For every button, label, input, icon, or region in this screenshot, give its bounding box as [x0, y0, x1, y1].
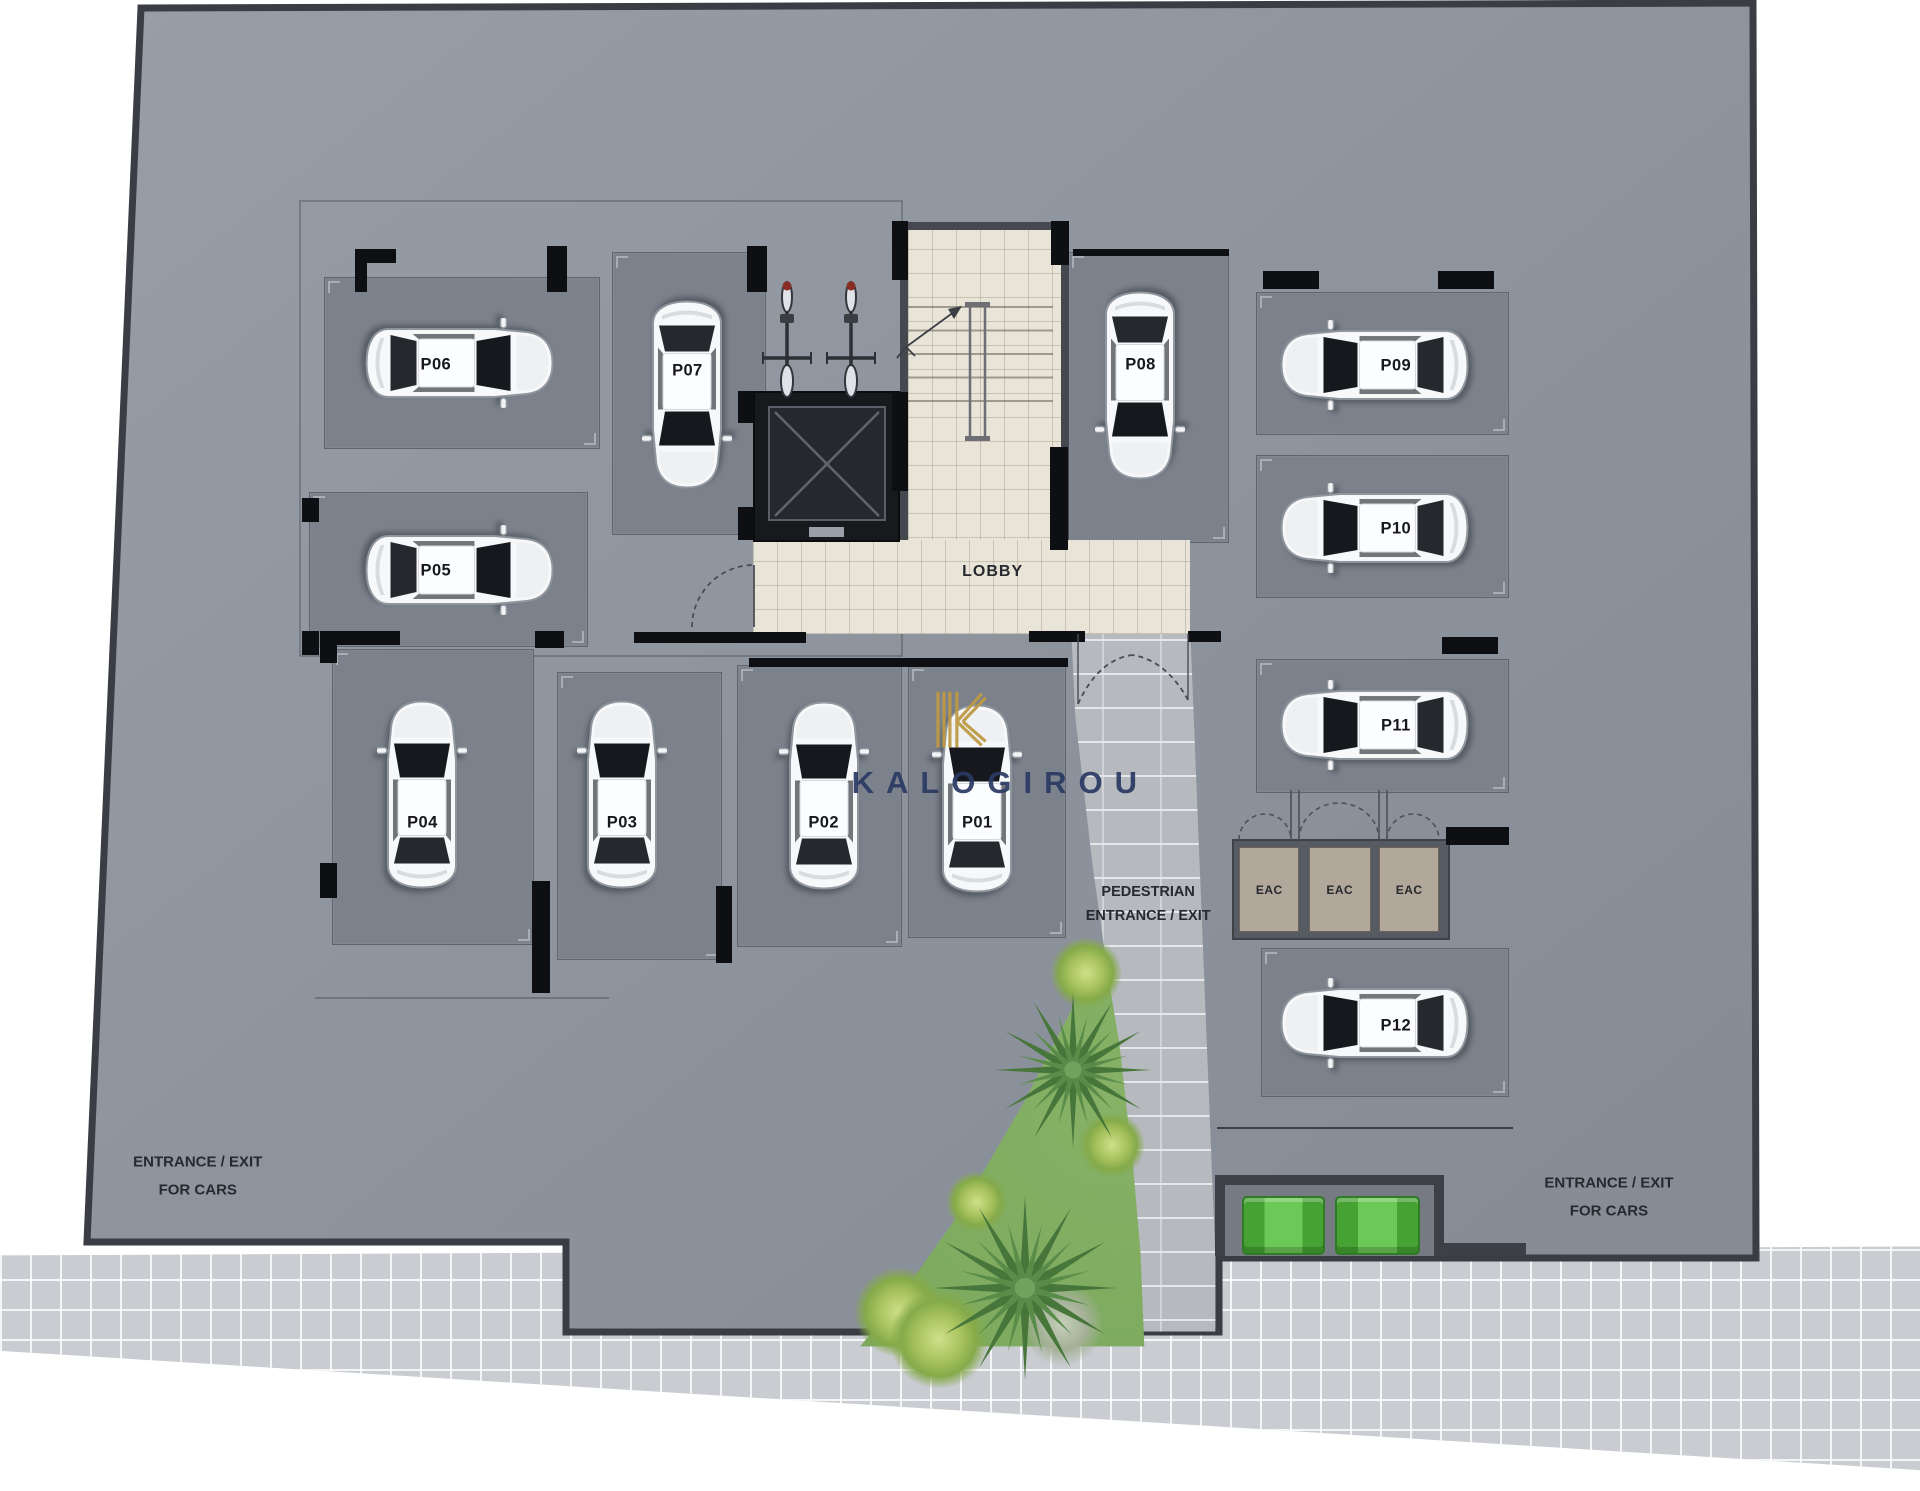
car-top-view	[1277, 978, 1472, 1068]
lobby-label: LOBBY	[962, 563, 1023, 581]
parking-spot-label: P11	[1381, 717, 1411, 736]
elevator-door	[809, 527, 844, 537]
car-entrance-right-label: ENTRANCE / EXIT FOR CARS	[1544, 1170, 1673, 1226]
wall-segment	[634, 632, 807, 642]
wall-segment	[716, 886, 732, 964]
wall-segment	[1051, 221, 1069, 266]
brand-watermark: KALOGIROU	[852, 765, 1149, 801]
parking-spot-label: P04	[407, 814, 438, 833]
wall-segment	[892, 221, 908, 281]
car-entrance-left-line1: ENTRANCE / EXIT	[133, 1149, 262, 1177]
wall-segment	[1263, 271, 1319, 288]
bench	[1242, 1196, 1325, 1256]
parking-spot-label: P10	[1381, 520, 1412, 539]
wall-segment	[535, 631, 564, 647]
parking-spot-label: P06	[421, 355, 452, 374]
wall-segment	[1050, 447, 1068, 550]
pedestrian-entrance-line2: ENTRANCE / EXIT	[1086, 905, 1211, 929]
wall-segment	[892, 392, 908, 490]
car-top-view	[1277, 320, 1472, 410]
eac-units: EAC EAC EAC	[1232, 839, 1450, 940]
wall-segment	[532, 881, 550, 993]
lobby-floor	[753, 540, 1191, 635]
parking-spot-label: P07	[672, 362, 703, 381]
bench	[1335, 1196, 1419, 1256]
parking-spot-label: P02	[808, 814, 839, 833]
car-top-view	[377, 697, 467, 892]
wall-segment	[747, 246, 767, 292]
wall-segment	[302, 631, 318, 655]
floor-plan-canvas: EAC EAC EAC	[0, 0, 1920, 1491]
parking-spot-label: P09	[1381, 357, 1412, 376]
wall-segment	[1442, 637, 1498, 654]
elevator	[753, 391, 901, 542]
parking-spot-label: P05	[421, 562, 452, 581]
wall-segment	[1444, 1243, 1527, 1256]
wall-segment	[1073, 249, 1229, 256]
wall-segment	[320, 631, 337, 662]
wall-segment	[1446, 827, 1509, 845]
car-top-view	[642, 296, 732, 491]
car-entrance-right-line2: FOR CARS	[1544, 1197, 1673, 1225]
pedestrian-entrance-label: PEDESTRIAN ENTRANCE / EXIT	[1086, 881, 1211, 929]
wall-segment	[355, 249, 367, 292]
eac-unit: EAC	[1379, 847, 1439, 932]
wall-segment	[547, 246, 567, 292]
wall-segment	[1438, 271, 1494, 288]
eac-label: EAC	[1256, 883, 1283, 897]
parking-spot-label: P03	[607, 814, 638, 833]
wall-segment	[302, 498, 318, 522]
eac-label: EAC	[1396, 883, 1423, 897]
eac-label: EAC	[1326, 883, 1353, 897]
car-top-view	[1277, 680, 1472, 770]
wall-segment	[749, 658, 1068, 668]
wall-segment	[1029, 631, 1085, 642]
car-top-view	[361, 525, 556, 615]
car-entrance-right-line1: ENTRANCE / EXIT	[1544, 1170, 1673, 1198]
car-entrance-left-line2: FOR CARS	[133, 1176, 262, 1204]
wall-segment	[738, 507, 752, 540]
eac-unit: EAC	[1239, 847, 1299, 932]
car-top-view	[1277, 483, 1472, 573]
car-top-view	[577, 697, 667, 892]
wall-segment	[320, 863, 337, 897]
brand-monogram-icon	[934, 689, 990, 750]
stair-treads	[907, 306, 1053, 424]
parking-spot-label: P01	[962, 814, 993, 833]
car-entrance-left-label: ENTRANCE / EXIT FOR CARS	[133, 1149, 262, 1205]
wall-segment	[738, 391, 752, 424]
car-top-view	[361, 318, 556, 408]
eac-unit: EAC	[1309, 847, 1371, 932]
parking-spot-label: P08	[1125, 356, 1156, 375]
pedestrian-entrance-line1: PEDESTRIAN	[1086, 881, 1211, 905]
wall-segment	[1188, 631, 1221, 642]
elevator-cab	[768, 406, 886, 521]
parking-spot-label: P12	[1381, 1016, 1412, 1035]
car-top-view	[1095, 287, 1185, 482]
